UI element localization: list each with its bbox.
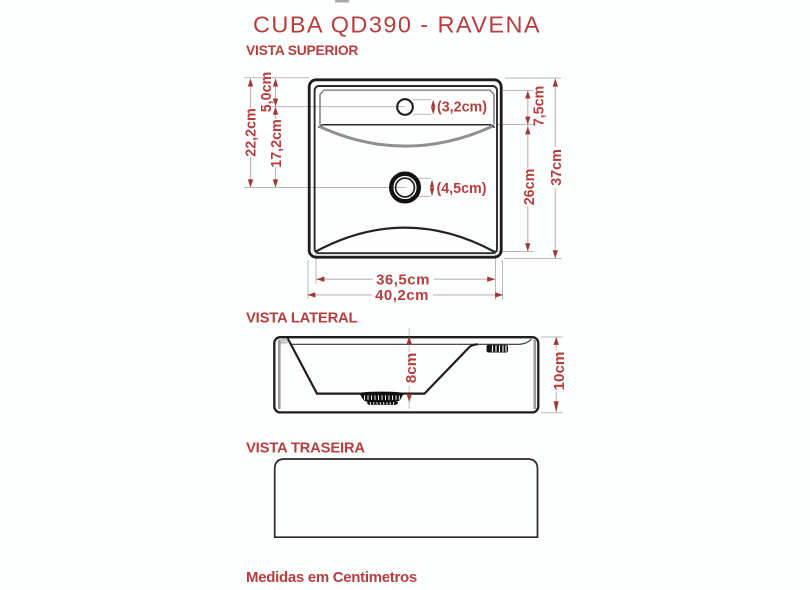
svg-text:(4,5cm): (4,5cm)	[436, 181, 486, 197]
svg-text:(3,2cm): (3,2cm)	[437, 100, 487, 116]
svg-text:8cm: 8cm	[403, 353, 420, 383]
svg-text:22,2cm: 22,2cm	[244, 108, 260, 157]
svg-text:VISTA LATERAL: VISTA LATERAL	[246, 311, 358, 327]
svg-text:10cm: 10cm	[551, 352, 568, 391]
svg-text:36,5cm: 36,5cm	[376, 271, 430, 288]
svg-text:VISTA SUPERIOR: VISTA SUPERIOR	[246, 43, 358, 58]
svg-text:7,5cm: 7,5cm	[532, 86, 548, 127]
svg-text:VISTA TRASEIRA: VISTA TRASEIRA	[246, 441, 365, 457]
svg-text:5,0cm: 5,0cm	[259, 72, 275, 113]
svg-text:26cm: 26cm	[522, 169, 538, 206]
svg-text:40,2cm: 40,2cm	[375, 287, 429, 304]
svg-text:Medidas em Centimetros: Medidas em Centimetros	[246, 569, 417, 586]
svg-text:CUBA QD390 - RAVENA: CUBA QD390 - RAVENA	[253, 12, 541, 38]
svg-text:37cm: 37cm	[549, 149, 565, 186]
svg-text:17,2cm: 17,2cm	[269, 119, 285, 168]
